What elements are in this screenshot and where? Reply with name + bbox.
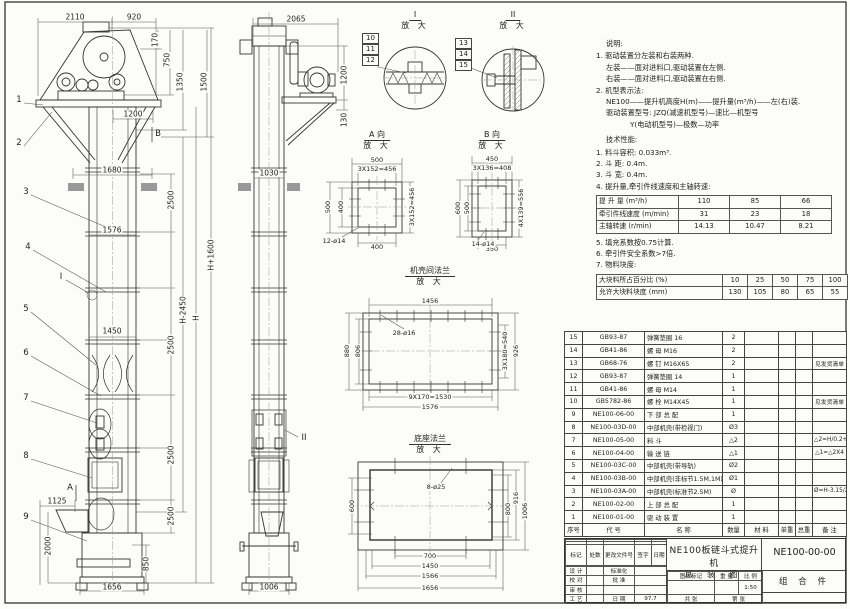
part-total-weight (796, 511, 813, 524)
part-code: NE100-03B-00 (583, 472, 645, 485)
drawing-title-box: NE100板链斗式提升机 总 装 图 (666, 539, 761, 571)
dim-bs-bottom: 700 (423, 553, 437, 560)
part-unit-weight (779, 408, 796, 421)
part-material (745, 434, 779, 447)
part-no: 8 (565, 421, 583, 434)
dim-1656: 1656 (101, 583, 122, 591)
marker-a: A (66, 484, 74, 493)
part-material (745, 357, 779, 370)
detail-a-title: A 向放 大 (363, 130, 391, 151)
part-remark (813, 511, 847, 524)
note-line: 2. 机型表示法: (596, 85, 848, 96)
note-line: 1. 驱动装置分左装和右装两种. (596, 50, 848, 61)
dim-2500-1: 2500 (167, 189, 175, 210)
part-code: GB68-76 (583, 357, 645, 370)
blank-box (761, 593, 847, 604)
part-remark: Ø=H-3.15/2.5 (813, 485, 847, 498)
balloon-13: 13 (455, 38, 472, 49)
dim-bs-right: 800 (505, 502, 512, 516)
part-total-weight (796, 357, 813, 370)
dim-1576: 1576 (101, 226, 122, 234)
part-name: 下 部 总 配 (645, 408, 723, 421)
parts-row: 10 GB5782-86 螺 栓 M14X45 1 见发货清单 (565, 395, 847, 408)
dim-b-right: 4X139=556 (518, 188, 525, 229)
marker-ii: II (300, 434, 307, 443)
part-material (745, 498, 779, 511)
part-qty: 1 (723, 370, 745, 383)
dim-a-left2: 400 (338, 200, 345, 214)
part-qty: 2 (723, 332, 745, 345)
detail-base-title: 底座法兰放 大 (409, 434, 451, 455)
dim-1350: 1350 (176, 71, 184, 92)
part-remark (813, 370, 847, 383)
dim-fl-bottom: 9X170=1530 (408, 394, 453, 401)
part-qty: 2 (723, 344, 745, 357)
part-material (745, 459, 779, 472)
part-no: 9 (565, 408, 583, 421)
part-unit-weight (779, 447, 796, 460)
dim-bs-right2: 916 (513, 491, 520, 505)
part-code: NE100-03C-00 (583, 459, 645, 472)
part-no: 2 (565, 498, 583, 511)
parts-row: 1 NE100-01-00 驱 动 装 置 1 (565, 511, 847, 524)
balloon-5: 5 (22, 305, 29, 314)
part-unit-weight (779, 511, 796, 524)
part-material (745, 485, 779, 498)
part-remark (813, 344, 847, 357)
balloon-9: 9 (22, 513, 29, 522)
dim-a-holes: 12-ø14 (322, 238, 347, 245)
parts-row: 6 NE100-04-00 输 送 链 △1 △1=△2X4 (565, 447, 847, 460)
part-qty: Ø2 (723, 459, 745, 472)
part-name: 中部机壳(标准节2.5M) (645, 485, 723, 498)
part-total-weight (796, 370, 813, 383)
part-name: 驱 动 装 置 (645, 511, 723, 524)
parts-row: 9 NE100-06-00 下 部 总 配 1 (565, 408, 847, 421)
parts-row: 13 GB68-76 螺 钉 M16X65 2 见发货清单 (565, 357, 847, 370)
part-total-weight (796, 395, 813, 408)
dim-920: 920 (126, 13, 142, 21)
part-no: 13 (565, 357, 583, 370)
part-material (745, 383, 779, 396)
part-qty: 1 (723, 511, 745, 524)
parts-row: 2 NE100-02-00 上 部 总 配 1 (565, 498, 847, 511)
part-name: 螺 栓 M14X45 (645, 395, 723, 408)
part-remark (813, 459, 847, 472)
dim-fl-holes: 28-ø16 (392, 330, 417, 337)
dim-b-left: 600 (455, 201, 462, 215)
balloon-11: 11 (362, 44, 379, 55)
revision-header: 标记处数 更改文件号签字 日期 (566, 544, 667, 565)
dim-170: 170 (151, 32, 159, 48)
part-name: 螺 母 M16 (645, 344, 723, 357)
part-total-weight (796, 421, 813, 434)
dim-a-top: 500 (370, 157, 384, 164)
part-no: 4 (565, 472, 583, 485)
part-unit-weight (779, 498, 796, 511)
part-unit-weight (779, 421, 796, 434)
parts-table: 15 GB93-87 弹簧垫圈 16 2 14 GB41-86 螺 母 M16 … (564, 331, 847, 537)
part-total-weight (796, 344, 813, 357)
part-name: 中部机壳(带导轨) (645, 459, 723, 472)
part-qty: △1 (723, 447, 745, 460)
view-outlines (36, 18, 544, 590)
tech-item: 2. 斗 距: 0.4m. (596, 158, 848, 169)
balloon-12: 12 (362, 55, 379, 66)
dim-bs-left: 600 (349, 499, 356, 513)
dim-1125: 1125 (46, 497, 67, 505)
marker-b: B (154, 130, 162, 139)
detail-flange-title: 机壳间法兰放 大 (405, 266, 455, 287)
part-name: 中部机壳(非标节1.5M,1M) (645, 472, 723, 485)
part-no: 12 (565, 370, 583, 383)
balloon-10: 10 (362, 33, 379, 44)
centerlines (113, 12, 544, 592)
revision-rows: 标记处数 更改文件号签字 日期 (565, 539, 666, 566)
part-code: NE100-04-00 (583, 447, 645, 460)
dim-h-2450: H-2450 (179, 295, 187, 324)
part-name: 螺 钉 M16X65 (645, 357, 723, 370)
balloon-3: 3 (22, 188, 29, 197)
tech-item: 6. 牵引件安全系数>7倍. (596, 248, 848, 259)
part-code: GB41-86 (583, 344, 645, 357)
wall-brackets (68, 183, 300, 191)
dim-bs-bottom2: 1450 (421, 563, 440, 570)
dim-fl-left: 880 (344, 344, 351, 358)
parts-row: 12 GB93-87 弹簧垫圈 14 1 (565, 370, 847, 383)
part-code: GB41-86 (583, 383, 645, 396)
dim-1200: 1200 (122, 110, 143, 118)
part-unit-weight (779, 459, 796, 472)
dim-2110: 2110 (64, 13, 85, 21)
product-name: NE100板链斗式提升机 (667, 539, 761, 569)
part-unit-weight (779, 344, 796, 357)
part-total-weight (796, 332, 813, 345)
dim-850: 850 (142, 556, 150, 572)
tech-title: 技术性能: (596, 134, 848, 145)
part-remark: 见发货清单 (813, 357, 847, 370)
part-qty: Ø3 (723, 421, 745, 434)
balloon-2: 2 (15, 139, 22, 148)
parts-row: 7 NE100-05-00 料 斗 △2 △2=H/0.2+5.75 (565, 434, 847, 447)
part-total-weight (796, 447, 813, 460)
dim-b-holes: 14-ø14 (471, 241, 496, 248)
dim-a-bottom: 400 (370, 244, 384, 251)
part-no: 1 (565, 511, 583, 524)
part-total-weight (796, 459, 813, 472)
part-material (745, 447, 779, 460)
parts-row: 8 NE100-03D-00 中部机壳(带检视门) Ø3 (565, 421, 847, 434)
part-no: 6 (565, 447, 583, 460)
part-name: 料 斗 (645, 434, 723, 447)
dim-2500-4: 2500 (167, 505, 175, 526)
drawing-sheet: 2110 920 170 750 1350 1500 1200 1680 157… (0, 0, 850, 609)
part-remark (813, 472, 847, 485)
part-total-weight (796, 408, 813, 421)
note-line: Y(电动机型号)—极数—功率 (596, 119, 848, 130)
part-remark (813, 408, 847, 421)
dim-fl-left2: 806 (355, 344, 362, 358)
dim-1030: 1030 (258, 169, 279, 177)
part-qty: Ø1 (723, 472, 745, 485)
part-material (745, 370, 779, 383)
part-code: NE100-01-00 (583, 511, 645, 524)
dim-1006: 1006 (258, 583, 279, 591)
part-total-weight (796, 383, 813, 396)
part-code: NE100-03D-00 (583, 421, 645, 434)
balloon-14: 14 (455, 49, 472, 60)
date-value: 97.7 (635, 594, 667, 603)
part-remark: 见发货清单 (813, 395, 847, 408)
parts-row: 15 GB93-87 弹簧垫圈 16 2 (565, 332, 847, 345)
detail-i-title: I放 大 (401, 10, 429, 31)
balloon-4: 4 (24, 243, 31, 252)
part-name: 中部机壳(带检视门) (645, 421, 723, 434)
dim-a-left: 500 (325, 200, 332, 214)
dim-bs-holes: 8-ø25 (426, 484, 447, 491)
part-remark (813, 498, 847, 511)
part-material (745, 408, 779, 421)
dim-fl-right2: 926 (513, 344, 520, 358)
dim-fl-top: 1456 (421, 298, 440, 305)
part-no: 5 (565, 459, 583, 472)
dim-fl-right: 3X180=540 (502, 331, 509, 372)
balloon-6: 6 (22, 349, 29, 358)
part-unit-weight (779, 434, 796, 447)
scale-grid: 图样标记重 量比 例 1:50 共 张第 张 (666, 571, 761, 604)
dim-fl-bottom2: 1576 (421, 404, 440, 411)
part-remark (813, 421, 847, 434)
parts-row: 11 GB41-86 螺 母 M14 1 (565, 383, 847, 396)
part-unit-weight (779, 383, 796, 396)
drawing-number-box: NE100-00-00 (761, 539, 847, 571)
part-material (745, 472, 779, 485)
note-line: 驱动装置型号: JZQ(减速机型号)—速比—机型号 (596, 107, 848, 118)
dim-bs-bottom4: 1656 (421, 585, 440, 592)
dim-bs-right3: 1006 (522, 502, 529, 521)
dim-h-1600: H+1600 (207, 238, 215, 271)
part-code: GB93-87 (583, 370, 645, 383)
dimension-lines (24, 18, 529, 595)
part-total-weight (796, 472, 813, 485)
dim-1680: 1680 (101, 166, 122, 174)
part-code: GB5782-86 (583, 395, 645, 408)
part-material (745, 421, 779, 434)
dim-750: 750 (163, 52, 171, 68)
tech-item: 3. 斗 宽: 0.4m. (596, 169, 848, 180)
part-class-box: 组 合 件 (761, 571, 847, 593)
dim-2500-3: 2500 (167, 444, 175, 465)
part-material (745, 344, 779, 357)
part-name: 螺 母 M14 (645, 383, 723, 396)
note-line: 左装——面对进料口,驱动装置在左侧. (596, 62, 848, 73)
parts-row: 14 GB41-86 螺 母 M16 2 (565, 344, 847, 357)
part-remark: △2=H/0.2+5.75 (813, 434, 847, 447)
dim-1500: 1500 (200, 71, 208, 92)
dim-2000: 2000 (44, 535, 52, 556)
part-name: 弹簧垫圈 14 (645, 370, 723, 383)
dim-b-left2: 500 (464, 201, 471, 215)
part-material (745, 511, 779, 524)
part-no: 7 (565, 434, 583, 447)
signature-grid: 设 计标准化 校 对批 准 审 核 工 艺日 期97.7 (565, 566, 666, 604)
part-qty: Ø (723, 485, 745, 498)
title-block: 标记处数 更改文件号签字 日期 设 计标准化 校 对批 准 审 核 工 艺日 期… (564, 538, 846, 603)
part-no: 14 (565, 344, 583, 357)
part-unit-weight (779, 332, 796, 345)
notes-title: 说明: (596, 38, 848, 49)
part-code: NE100-06-00 (583, 408, 645, 421)
part-material (745, 332, 779, 345)
parts-header-row: 序号代 号 名 称数量 材 料单重 总重备 注 (565, 523, 847, 536)
part-qty: 1 (723, 408, 745, 421)
dim-b-top2: 3X136=408 (472, 165, 513, 172)
part-remark (813, 332, 847, 345)
detail-ii-title: II放 大 (499, 10, 527, 31)
dim-bs-bottom3: 1566 (421, 573, 440, 580)
dim-h: H (192, 314, 200, 322)
part-qty: 2 (723, 357, 745, 370)
balloon-7: 7 (22, 394, 29, 403)
tech-item: 1. 料斗容积: 0.033m³. (596, 147, 848, 158)
dim-b-top: 450 (485, 156, 499, 163)
dim-1450: 1450 (101, 327, 122, 335)
block-size-table: 大块料所占百分比 (%)10255075100 允许大块料块度 (mm)1301… (596, 274, 848, 300)
part-remark (813, 383, 847, 396)
part-no: 3 (565, 485, 583, 498)
part-unit-weight (779, 472, 796, 485)
balloon-1: 1 (15, 96, 22, 105)
dim-side-1200: 1200 (340, 64, 348, 85)
part-unit-weight (779, 370, 796, 383)
part-code: NE100-02-00 (583, 498, 645, 511)
note-line: 右装——面对进料口,驱动装置在右侧. (596, 73, 848, 84)
part-remark: △1=△2X4 (813, 447, 847, 460)
part-total-weight (796, 498, 813, 511)
balloon-8: 8 (22, 452, 29, 461)
part-no: 10 (565, 395, 583, 408)
dim-2065: 2065 (285, 15, 306, 23)
part-total-weight (796, 434, 813, 447)
drawing-number: NE100-00-00 (762, 539, 847, 558)
dim-side-130: 130 (340, 112, 348, 128)
part-qty: 1 (723, 498, 745, 511)
part-no: 15 (565, 332, 583, 345)
notes-panel: 说明: 1. 驱动装置分左装和右装两种. 左装——面对进料口,驱动装置在左侧. … (596, 38, 848, 303)
part-qty: 1 (723, 395, 745, 408)
tech-item: 7. 物料块度: (596, 259, 848, 270)
marker-i: I (59, 273, 64, 282)
part-name: 弹簧垫圈 16 (645, 332, 723, 345)
dim-a-top2: 3X152=456 (357, 166, 398, 173)
scale-value: 1:50 (739, 581, 763, 595)
part-material (745, 395, 779, 408)
speed-table: 提 升 量 (m³/h)1108566 牵引件线速度 (m/min)312318… (596, 195, 832, 233)
part-qty: △2 (723, 434, 745, 447)
part-qty: 1 (723, 383, 745, 396)
part-class: 组 合 件 (762, 571, 847, 593)
dim-a-right: 3X152=456 (409, 187, 416, 228)
balloon-15: 15 (455, 60, 472, 71)
dim-2500-2: 2500 (167, 334, 175, 355)
part-unit-weight (779, 395, 796, 408)
part-name: 上 部 总 配 (645, 498, 723, 511)
part-code: NE100-05-00 (583, 434, 645, 447)
part-total-weight (796, 485, 813, 498)
part-code: GB93-87 (583, 332, 645, 345)
part-no: 11 (565, 383, 583, 396)
tech-item: 5. 填充系数按0.75计算. (596, 237, 848, 248)
detail-b-title: B 向放 大 (478, 130, 506, 151)
parts-row: 3 NE100-03A-00 中部机壳(标准节2.5M) Ø Ø=H-3.15/… (565, 485, 847, 498)
tech-item: 4. 提升量,牵引件线速度和主轴转速: (596, 181, 848, 192)
part-unit-weight (779, 357, 796, 370)
part-code: NE100-03A-00 (583, 485, 645, 498)
note-line: NE100——提升机高度H(m)——提升量(m³/h)——左(右)装. (596, 96, 848, 107)
parts-row: 5 NE100-03C-00 中部机壳(带导轨) Ø2 (565, 459, 847, 472)
part-name: 输 送 链 (645, 447, 723, 460)
parts-row: 4 NE100-03B-00 中部机壳(非标节1.5M,1M) Ø1 (565, 472, 847, 485)
part-unit-weight (779, 485, 796, 498)
